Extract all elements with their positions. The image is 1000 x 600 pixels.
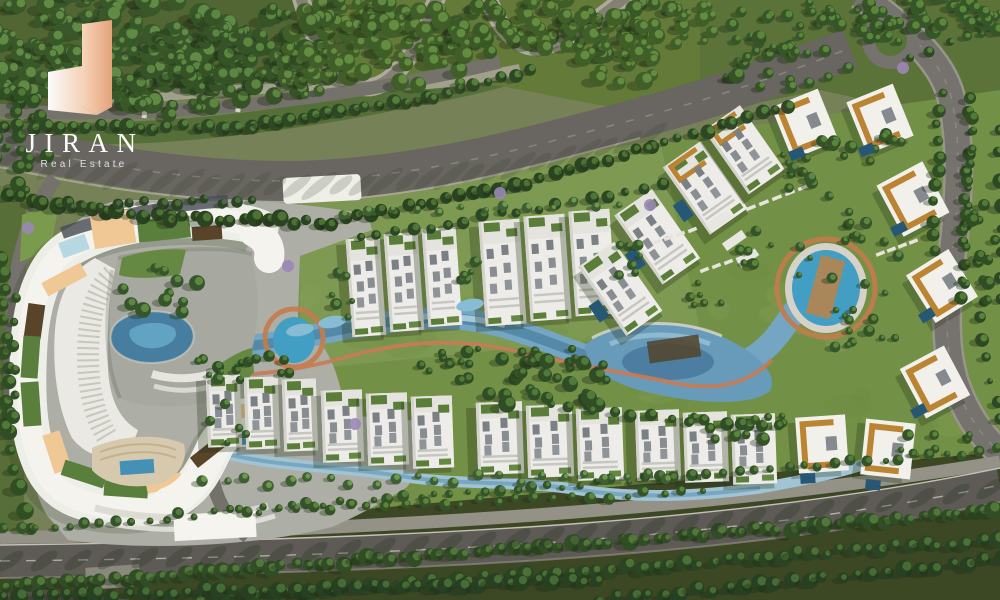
svg-text:Real Estate: Real Estate (41, 159, 128, 170)
svg-text:JIRAN: JIRAN (25, 128, 144, 158)
